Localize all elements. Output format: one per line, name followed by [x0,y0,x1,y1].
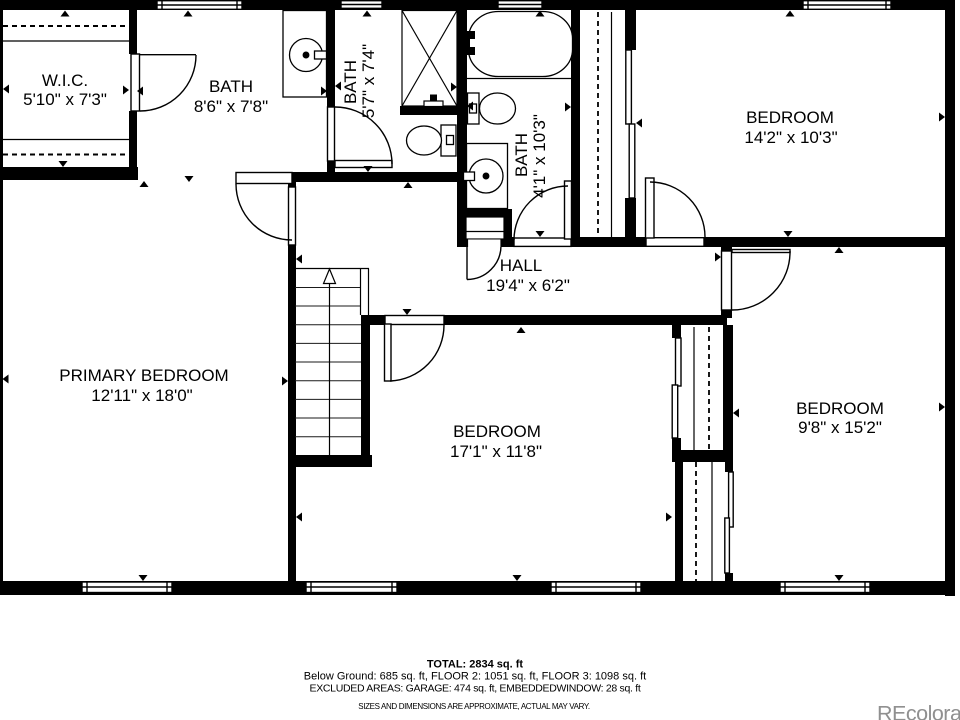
svg-text:4'1" x 10'3": 4'1" x 10'3" [530,114,549,198]
svg-text:BEDROOM: BEDROOM [746,108,834,127]
svg-text:17'1" x 11'8": 17'1" x 11'8" [450,442,542,461]
svg-text:Below Ground: 685 sq. ft, FLOO: Below Ground: 685 sq. ft, FLOOR 2: 1051 … [304,671,646,683]
svg-text:SIZES AND DIMENSIONS ARE APPRO: SIZES AND DIMENSIONS ARE APPROXIMATE, AC… [358,702,590,711]
svg-text:EXCLUDED AREAS: GARAGE: 474 sq: EXCLUDED AREAS: GARAGE: 474 sq. ft, EMBE… [309,683,640,695]
svg-text:TOTAL: 2834 sq. ft: TOTAL: 2834 sq. ft [427,659,524,671]
svg-text:BEDROOM: BEDROOM [453,422,541,441]
svg-text:PRIMARY BEDROOM: PRIMARY BEDROOM [59,366,228,385]
svg-text:19'4" x 6'2": 19'4" x 6'2" [486,276,570,295]
svg-text:12'11" x 18'0": 12'11" x 18'0" [91,386,192,405]
svg-text:BATH: BATH [209,77,253,96]
svg-text:REcolorado: REcolorado [877,702,960,720]
svg-text:W.I.C.: W.I.C. [42,71,88,90]
svg-text:5'7" x 7'4": 5'7" x 7'4" [359,44,378,118]
svg-text:HALL: HALL [500,256,543,275]
svg-text:9'8" x 15'2": 9'8" x 15'2" [798,418,882,437]
svg-text:BATH: BATH [512,133,531,177]
svg-text:BEDROOM: BEDROOM [796,399,884,418]
svg-text:14'2" x 10'3": 14'2" x 10'3" [744,128,837,147]
svg-text:8'6" x 7'8": 8'6" x 7'8" [194,97,268,116]
svg-text:BATH: BATH [341,60,360,104]
svg-text:5'10" x 7'3": 5'10" x 7'3" [23,90,107,109]
